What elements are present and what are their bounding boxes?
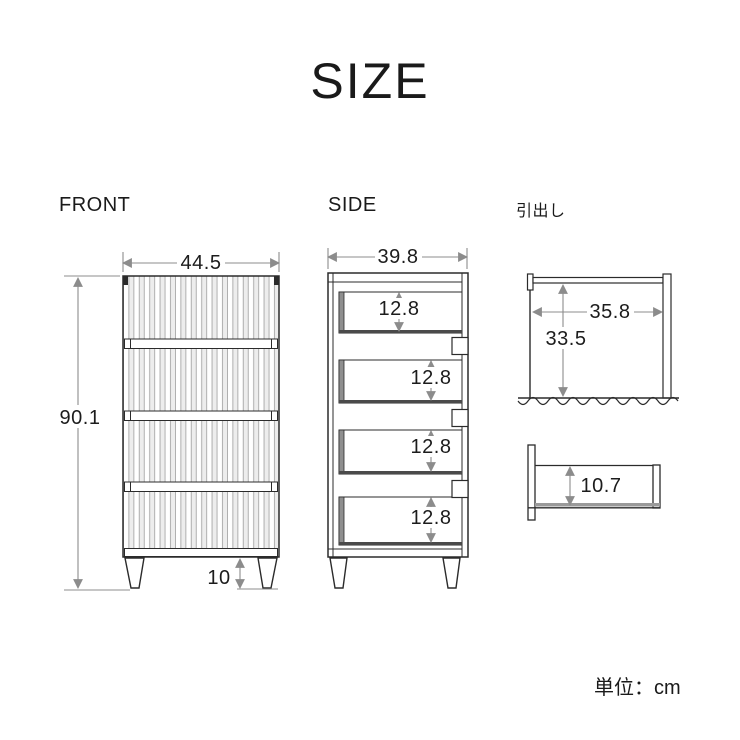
drawer-back-edge [653, 465, 660, 508]
side-right-leg [443, 558, 460, 588]
front-view-diagram: 44.5 90.1 10 [56, 252, 279, 590]
front-leg-height-value: 10 [207, 567, 230, 589]
drawer-left-cap [528, 274, 534, 290]
drawer-front-panel [528, 445, 535, 520]
unit-note: 単位：cm [594, 671, 681, 700]
corner-cap [123, 276, 128, 285]
front-height-value: 90.1 [60, 407, 101, 429]
dimension-drawing: 44.5 90.1 10 [0, 0, 740, 740]
drawer-height-value-1: 12.8 [379, 298, 420, 320]
front-left-leg [125, 558, 144, 588]
drawer-right-side [663, 274, 671, 398]
drawer-top-view: 35.8 33.5 [518, 274, 679, 405]
drawer-height-value-4: 12.8 [411, 507, 452, 529]
plinth-band [125, 549, 278, 557]
drawer-back-panel [533, 278, 663, 284]
front-height-dim [64, 276, 130, 590]
drawer-bottom-panel [535, 503, 660, 507]
side-view-diagram: 39.8 12.8 12.8 12.8 12.8 [328, 246, 468, 588]
drawer-inner-depth-value: 33.5 [546, 328, 587, 350]
drawer-inner-width-value: 35.8 [590, 301, 631, 323]
side-left-leg [330, 558, 347, 588]
front-right-leg [258, 558, 277, 588]
drawer-side-view: 10.7 [528, 445, 660, 520]
drawer-inner-height-value: 10.7 [581, 475, 622, 497]
drawer-height-value-2: 12.8 [411, 367, 452, 389]
size-diagram-page: SIZE FRONT SIDE 引出し [0, 0, 740, 740]
side-depth-value: 39.8 [378, 246, 419, 268]
drawer-height-value-3: 12.8 [411, 436, 452, 458]
corner-cap [274, 276, 279, 285]
front-width-value: 44.5 [181, 252, 222, 274]
